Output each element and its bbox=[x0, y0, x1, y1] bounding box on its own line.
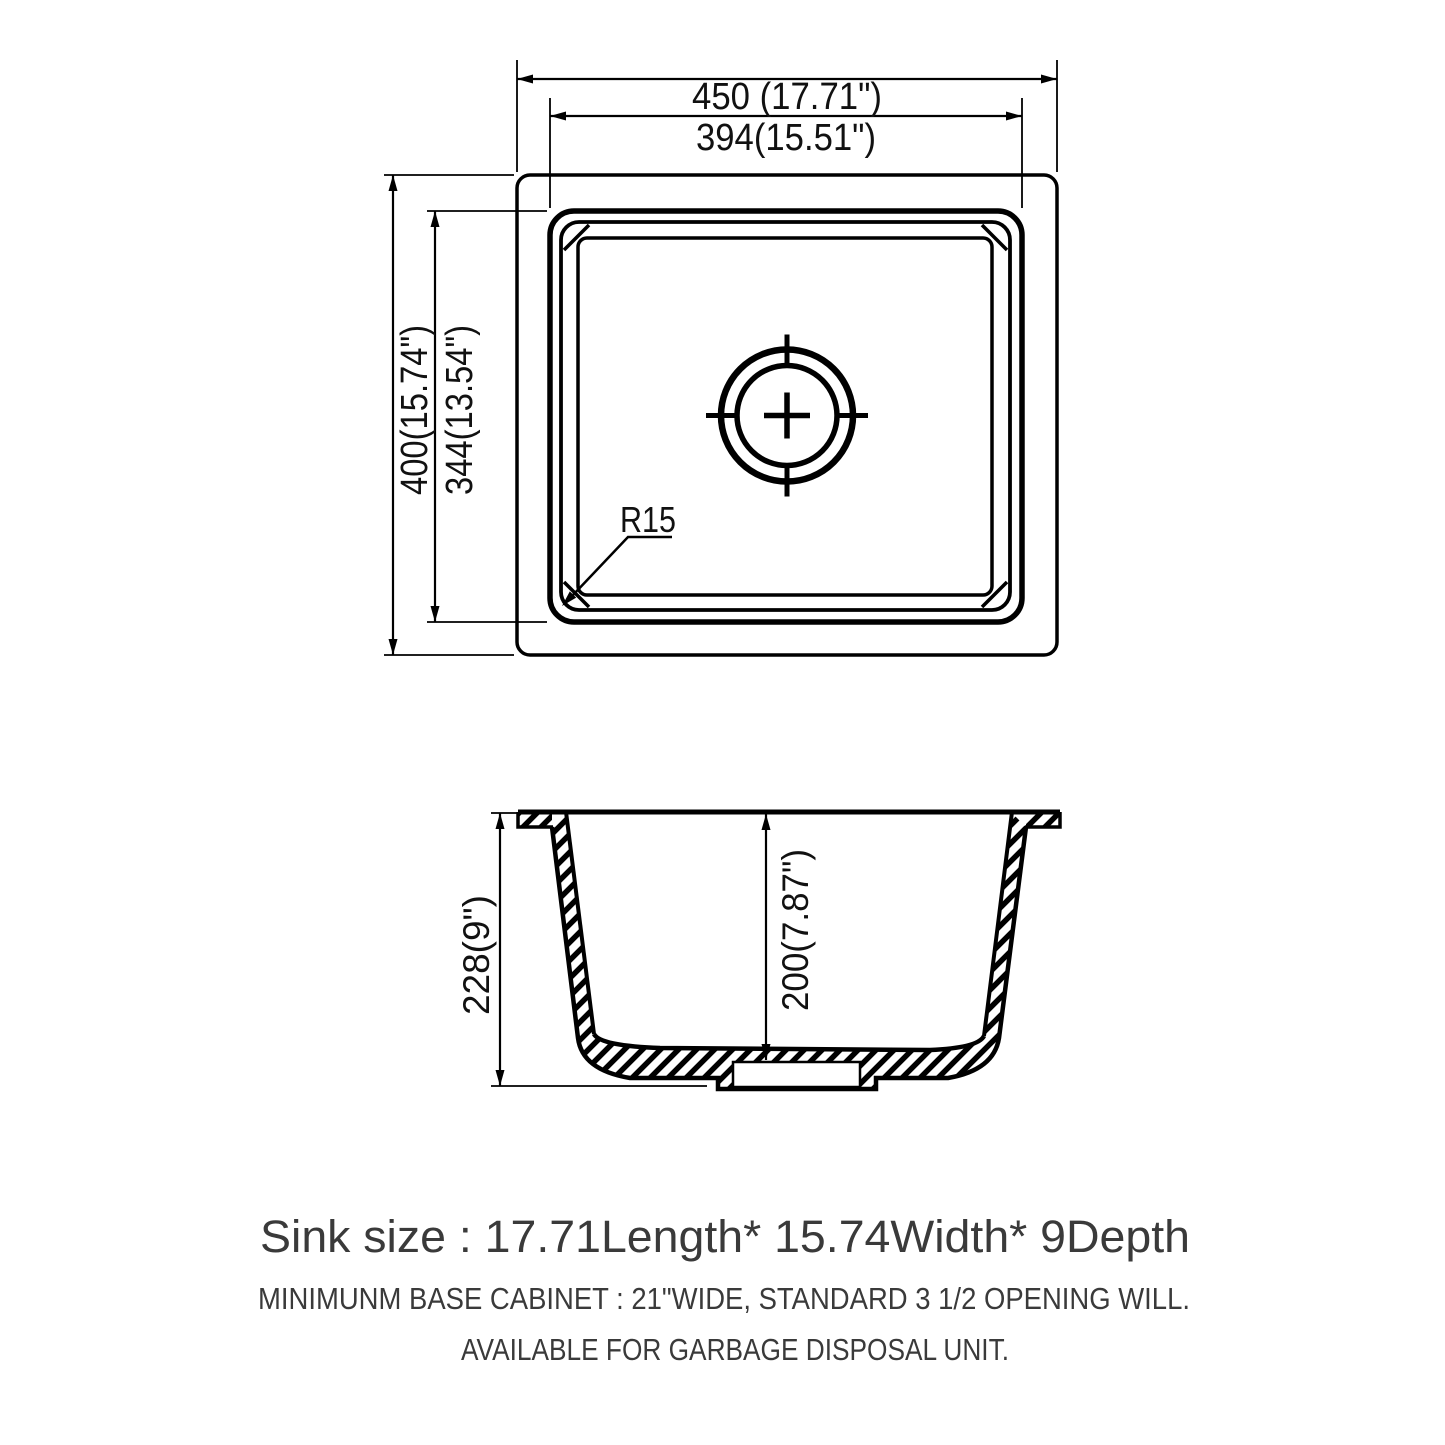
top-view-arrowheads bbox=[389, 75, 1058, 656]
sink-size-line: Sink size : 17.71Length* 15.74Width* 9De… bbox=[260, 1211, 1190, 1262]
dim-label-height-outer: 400(15.74") bbox=[394, 325, 436, 495]
disposal-note-line: AVAILABLE FOR GARBAGE DISPOSAL UNIT. bbox=[461, 1332, 1009, 1367]
drain-center-cross bbox=[764, 393, 810, 439]
dim-label-width-inner: 394(15.51") bbox=[696, 117, 876, 159]
dim-label-corner-radius: R15 bbox=[620, 499, 676, 540]
drain-symbol bbox=[706, 335, 868, 497]
section-bowl-bottom bbox=[594, 1034, 984, 1050]
footer-notes: Sink size : 17.71Length* 15.74Width* 9De… bbox=[258, 1211, 1190, 1367]
dim-label-height-inner: 344(13.54") bbox=[439, 325, 481, 495]
section-dimension-labels: 228(9") 200(7.87") bbox=[456, 849, 816, 1015]
dim-label-depth-outer: 228(9") bbox=[456, 895, 497, 1015]
drain-recess bbox=[733, 1062, 860, 1087]
right-flange-hatch bbox=[1026, 813, 1060, 827]
sink-spec-drawing: 450 (17.71") 394(15.51") 400(15.74") 344… bbox=[0, 0, 1445, 1445]
cabinet-note-line: MINIMUNM BASE CABINET : 21"WIDE, STANDAR… bbox=[258, 1281, 1190, 1316]
dim-label-width-outer: 450 (17.71") bbox=[692, 76, 882, 118]
technical-drawing-canvas: 450 (17.71") 394(15.51") 400(15.74") 344… bbox=[0, 0, 1445, 1445]
left-flange-hatch bbox=[518, 813, 552, 827]
top-view-dimension-lines bbox=[393, 79, 1057, 655]
top-view-dimension-labels: 450 (17.71") 394(15.51") 400(15.74") 344… bbox=[394, 76, 882, 540]
dim-label-depth-inner: 200(7.87") bbox=[775, 849, 816, 1011]
